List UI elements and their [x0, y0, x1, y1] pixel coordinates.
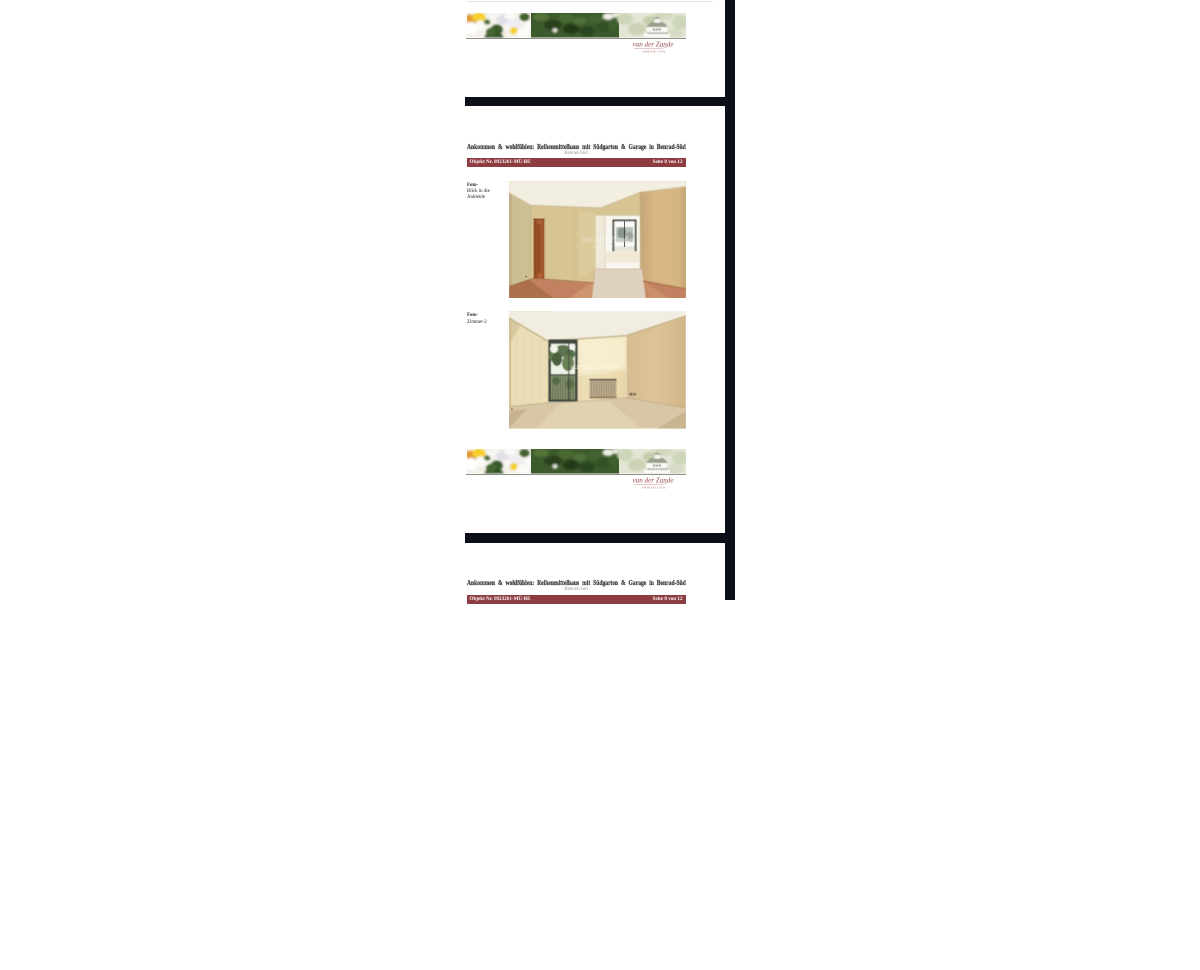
svg-text:van der Zande: van der Zande [570, 361, 620, 371]
svg-text:IMMOBILIEN: IMMOBILIEN [580, 372, 609, 376]
svg-text:van der Zande: van der Zande [633, 476, 675, 485]
svg-text:van der Zande: van der Zande [582, 234, 632, 244]
svg-text:IMMOBILIEN: IMMOBILIEN [642, 49, 666, 53]
svg-text:IMMOBILIEN: IMMOBILIEN [592, 244, 621, 248]
svg-text:IMMOBILIEN: IMMOBILIEN [642, 485, 666, 489]
svg-text:van der Zande: van der Zande [633, 40, 675, 49]
